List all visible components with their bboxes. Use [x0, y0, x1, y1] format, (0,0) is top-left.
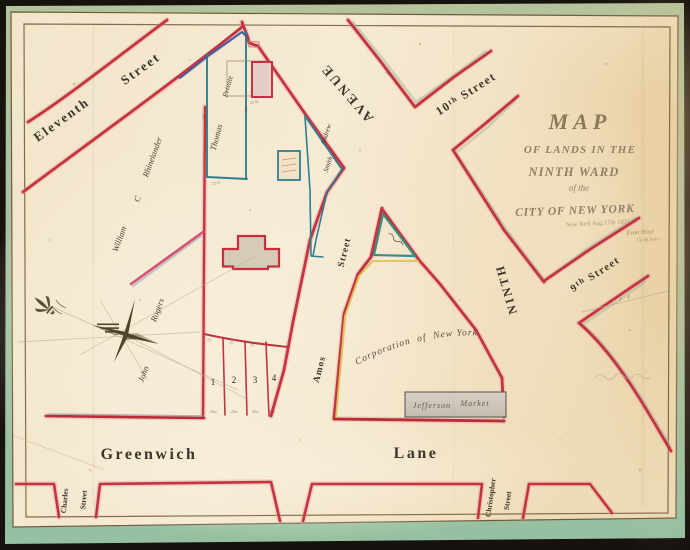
svg-text:NINTH WARD: NINTH WARD: [527, 165, 619, 179]
svg-text:4: 4: [272, 373, 277, 383]
svg-text:25w: 25w: [231, 409, 238, 414]
svg-text:1: 1: [211, 377, 216, 387]
svg-text:OF LANDS IN THE: OF LANDS IN THE: [524, 144, 636, 156]
svg-text:100: 100: [201, 114, 206, 120]
svg-text:Street: Street: [78, 489, 89, 509]
svg-text:25: 25: [250, 342, 254, 347]
svg-text:25: 25: [229, 340, 233, 345]
svg-text:Cy & Surv: Cy & Surv: [636, 236, 660, 243]
svg-text:25w: 25w: [252, 409, 259, 414]
svg-text:Market: Market: [459, 399, 489, 408]
svg-text:25w: 25w: [268, 409, 275, 414]
svg-text:25w: 25w: [210, 409, 217, 414]
svg-text:2: 2: [232, 375, 237, 385]
svg-text:Lane: Lane: [394, 445, 439, 462]
svg-text:100: 100: [243, 107, 249, 113]
svg-text:3: 3: [253, 375, 258, 385]
svg-text:Jefferson: Jefferson: [413, 401, 451, 410]
svg-text:of the: of the: [569, 183, 589, 193]
svg-text:25: 25: [207, 337, 211, 342]
svg-text:Greenwich: Greenwich: [101, 446, 198, 463]
svg-text:MAP: MAP: [548, 109, 612, 134]
